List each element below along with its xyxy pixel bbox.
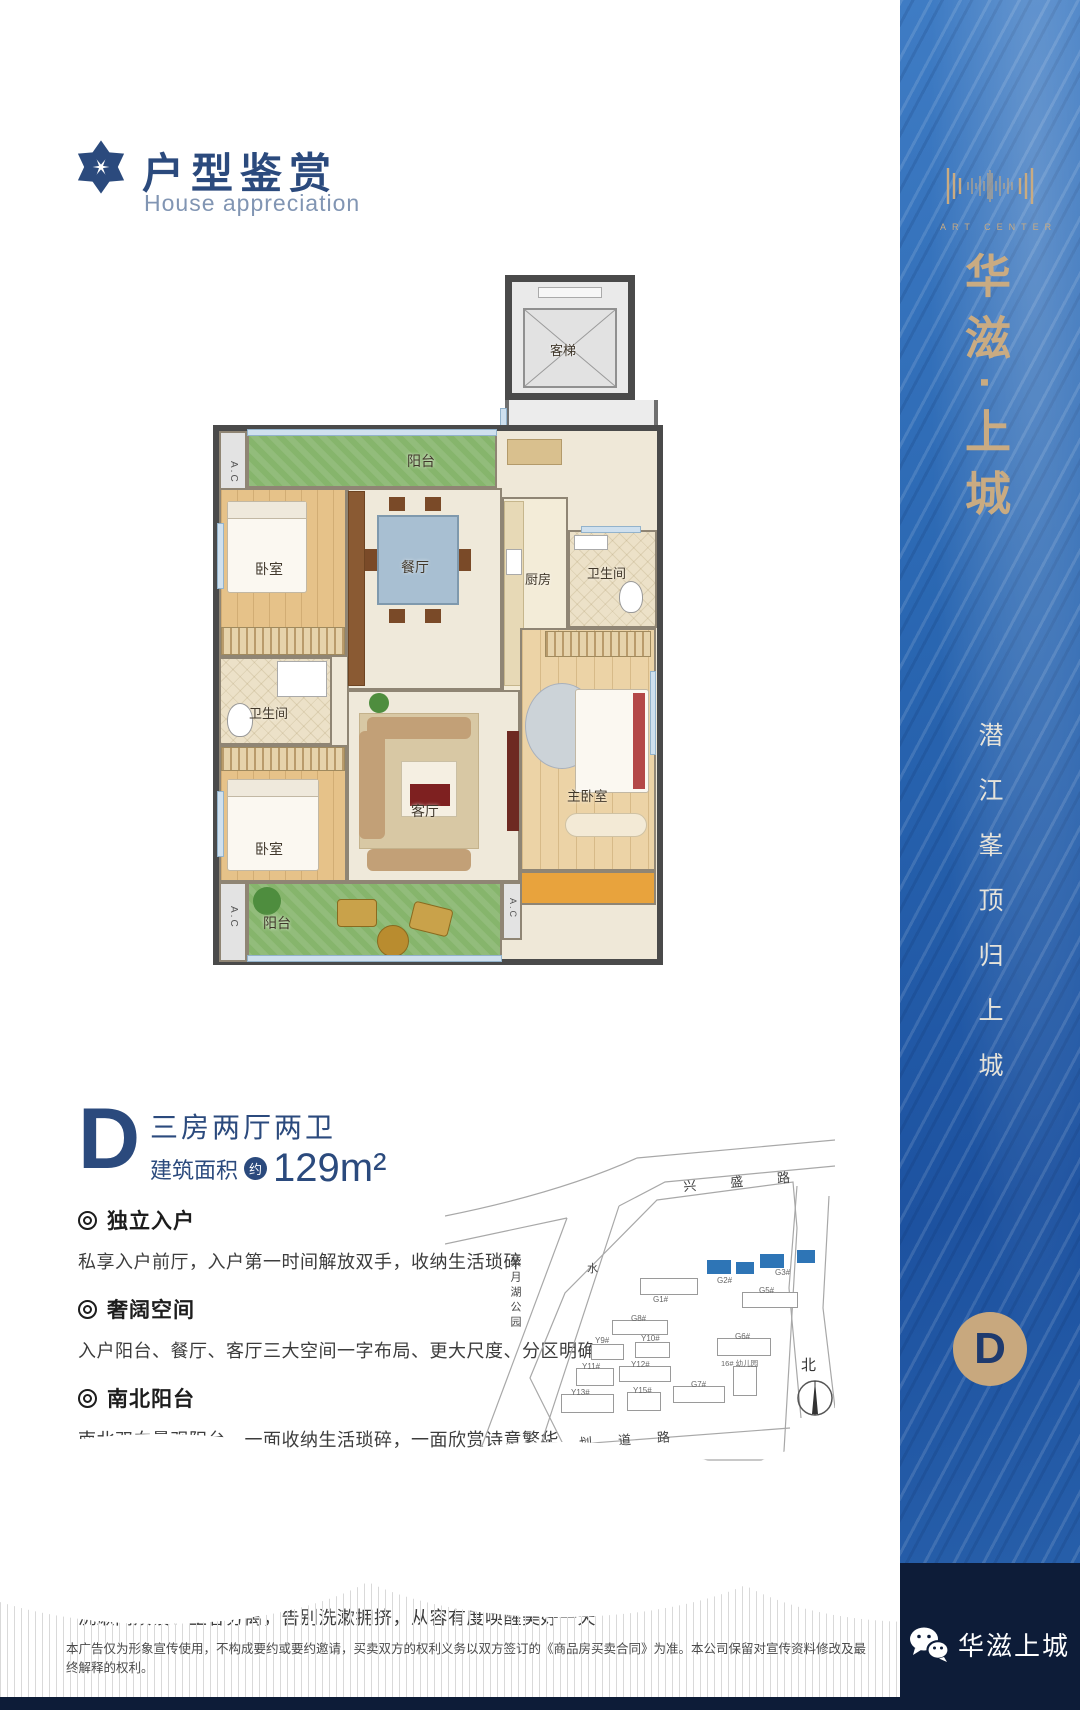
page-subtitle: House appreciation [144, 190, 360, 217]
unit-badge: D [953, 1312, 1027, 1386]
art-center-logo-icon [944, 160, 1036, 212]
pillow [633, 693, 645, 789]
dining-label: 餐厅 [401, 557, 429, 577]
wechat-row: 华滋上城 [908, 1625, 1070, 1663]
sofa [367, 849, 471, 871]
sofa [359, 731, 385, 839]
building-highlight [797, 1250, 815, 1263]
window [247, 955, 502, 962]
road-label-left: 水 [587, 1260, 598, 1276]
building-highlight [736, 1262, 754, 1274]
window [217, 791, 224, 857]
unit-outline: A.C 阳台 卧室 餐厅 [213, 425, 663, 965]
building-highlight [707, 1260, 731, 1274]
wechat-icon [908, 1625, 950, 1663]
wardrobe [221, 627, 345, 655]
park-label: 紫月湖公园 [507, 1256, 523, 1331]
building-label: Y15# [633, 1386, 652, 1395]
building-label: G6# [735, 1332, 750, 1341]
ac-label: A.C [228, 461, 239, 484]
sink [506, 549, 522, 575]
master-bay-window [520, 871, 656, 905]
kitchen-label: 厨房 [525, 569, 551, 588]
washbasin [574, 535, 608, 550]
elevator-shaft: 客梯 [505, 275, 635, 400]
window [650, 671, 656, 755]
sideboard [348, 491, 365, 686]
chair [425, 497, 441, 511]
building-label: Y12# [631, 1360, 650, 1369]
area-label: 建筑面积 [150, 1153, 238, 1185]
stripe-pattern [0, 1552, 900, 1698]
bathroom-label: 卫生间 [587, 563, 626, 582]
master-bedroom-label: 主卧室 [567, 785, 608, 805]
bullseye-icon [78, 1300, 97, 1319]
bathroom-label: 卫生间 [249, 703, 288, 722]
balcony-label: 阳台 [263, 913, 291, 933]
balcony-chair [337, 899, 377, 927]
chair [389, 609, 405, 623]
art-center-text: ART CENTER [940, 222, 1057, 232]
unit-area-row: 建筑面积 约 129m² [150, 1146, 386, 1191]
feature-title-text: 南北阳台 [107, 1383, 195, 1413]
balcony-label: 阳台 [407, 451, 435, 471]
balcony-north: 阳台 [247, 431, 497, 488]
building-label: G2# [717, 1276, 732, 1285]
bed [227, 501, 307, 593]
living-label: 客厅 [411, 801, 439, 821]
tv-console [507, 731, 519, 831]
building-label: Y9# [595, 1336, 609, 1345]
slogan-vertical: 潜江峯顶归上城 [976, 722, 1001, 1107]
footer-brand: 华滋上城 [958, 1626, 1070, 1663]
sidebar-footer: 华滋上城 [900, 1563, 1080, 1710]
feature-title-text: 奢阔空间 [107, 1294, 195, 1324]
building [591, 1344, 624, 1360]
ac-shaft-south: A.C [219, 882, 247, 962]
shower [277, 661, 327, 697]
chair [459, 549, 471, 571]
building-label: 16# 幼儿园 [721, 1358, 758, 1369]
ac-label: A.C [228, 906, 239, 929]
plant [369, 693, 389, 713]
unit-layout: 三房两厅两卫 [150, 1106, 336, 1146]
disclaimer-text: 本广告仅为形象宣传使用，不构成要约或要约邀请，买卖双方的权利义务以双方签订的《商… [66, 1638, 866, 1676]
balcony-table [377, 925, 409, 957]
building-label: G5# [759, 1286, 774, 1295]
elevator-counterweight [538, 287, 602, 298]
area-value: 129m² [273, 1146, 386, 1191]
toilet [619, 581, 643, 613]
bullseye-icon [78, 1211, 97, 1230]
elevator-cab: 客梯 [523, 308, 617, 388]
building [640, 1278, 698, 1295]
building-label: G1# [653, 1295, 668, 1304]
feature-title-text: 独立入户 [107, 1205, 195, 1235]
wardrobe [545, 631, 651, 657]
ac-label: A.C [508, 898, 518, 919]
brand-vertical: 华滋·上城 [962, 252, 1008, 531]
building-label: Y11# [582, 1362, 600, 1371]
building-label: Y13# [571, 1388, 590, 1397]
sidebar: ART CENTER 华滋·上城 潜江峯顶归上城 D [900, 0, 1080, 1710]
ac-shaft-mid: A.C [502, 882, 522, 940]
star-flower-icon [72, 138, 130, 196]
foyer-cabinet [507, 439, 562, 465]
window [581, 526, 641, 533]
bench [565, 813, 647, 837]
bedroom-label: 卧室 [255, 839, 283, 859]
plant [253, 887, 281, 915]
window [247, 429, 497, 436]
building-label: G7# [691, 1380, 706, 1389]
building-kindergarten [733, 1366, 757, 1396]
north-label: 北 [801, 1354, 816, 1375]
poster-page: 户型鉴赏 House appreciation 客梯 电梯厅 A.C [0, 0, 1080, 1710]
chair [389, 497, 405, 511]
approx-circle-icon: 约 [244, 1157, 267, 1180]
unit-letter: D [78, 1096, 140, 1182]
bullseye-icon [78, 1389, 97, 1408]
chair [365, 549, 377, 571]
building-label: Y10# [641, 1334, 660, 1343]
building-label: G3# [775, 1268, 790, 1277]
window [217, 523, 224, 589]
building-highlight [760, 1254, 784, 1268]
elevator-label: 客梯 [550, 340, 576, 359]
building-label: G8# [631, 1314, 646, 1323]
floor-plan: 客梯 电梯厅 A.C 阳台 卧室 [205, 268, 670, 968]
building [635, 1342, 670, 1358]
wardrobe [221, 747, 345, 771]
chair [425, 609, 441, 623]
bedroom-label: 卧室 [255, 559, 283, 579]
